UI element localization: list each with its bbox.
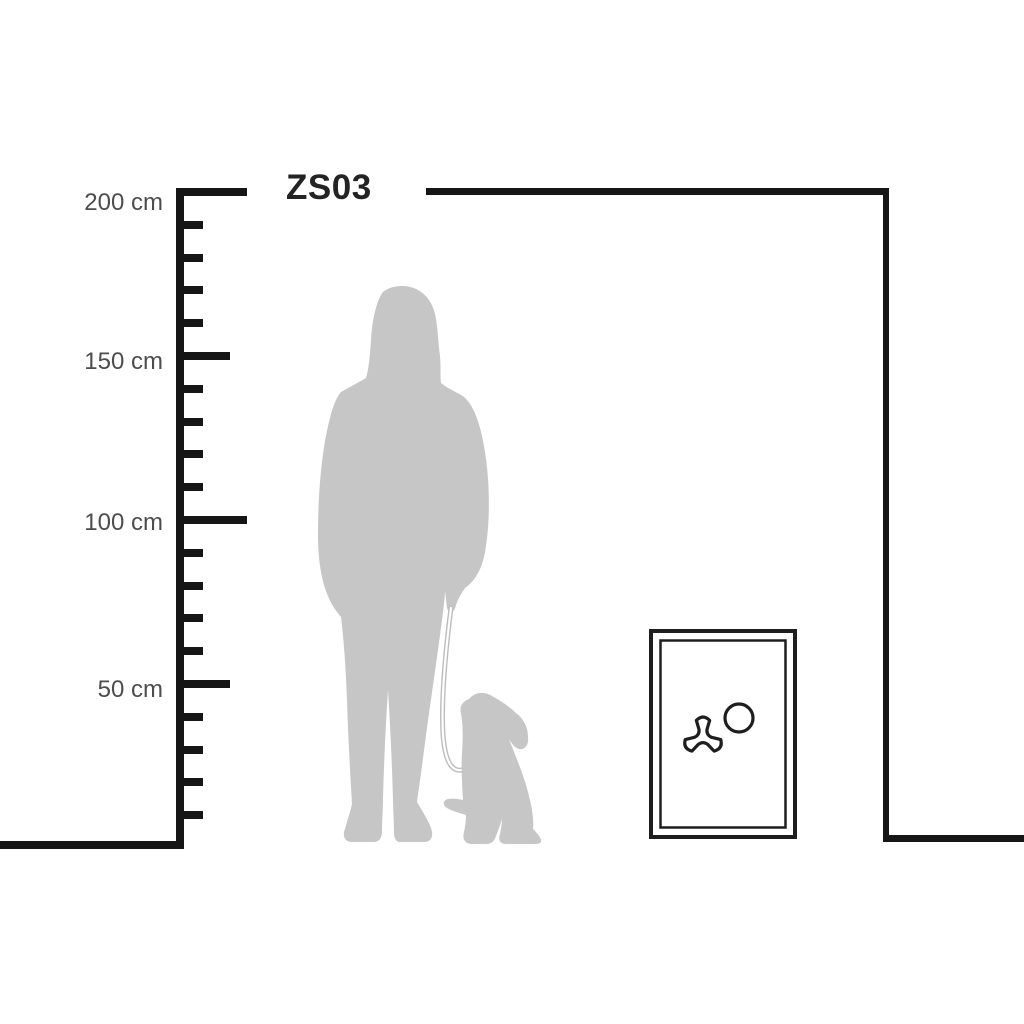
leash-line [442, 608, 462, 770]
safe-front [651, 631, 795, 837]
scene-graphics [0, 0, 1024, 1024]
lock-dial-circle-icon [725, 704, 753, 732]
size-comparison-diagram: ZS03 200 cm 150 cm 100 cm 50 cm [0, 0, 1024, 1024]
safe-outer-frame [651, 631, 795, 837]
